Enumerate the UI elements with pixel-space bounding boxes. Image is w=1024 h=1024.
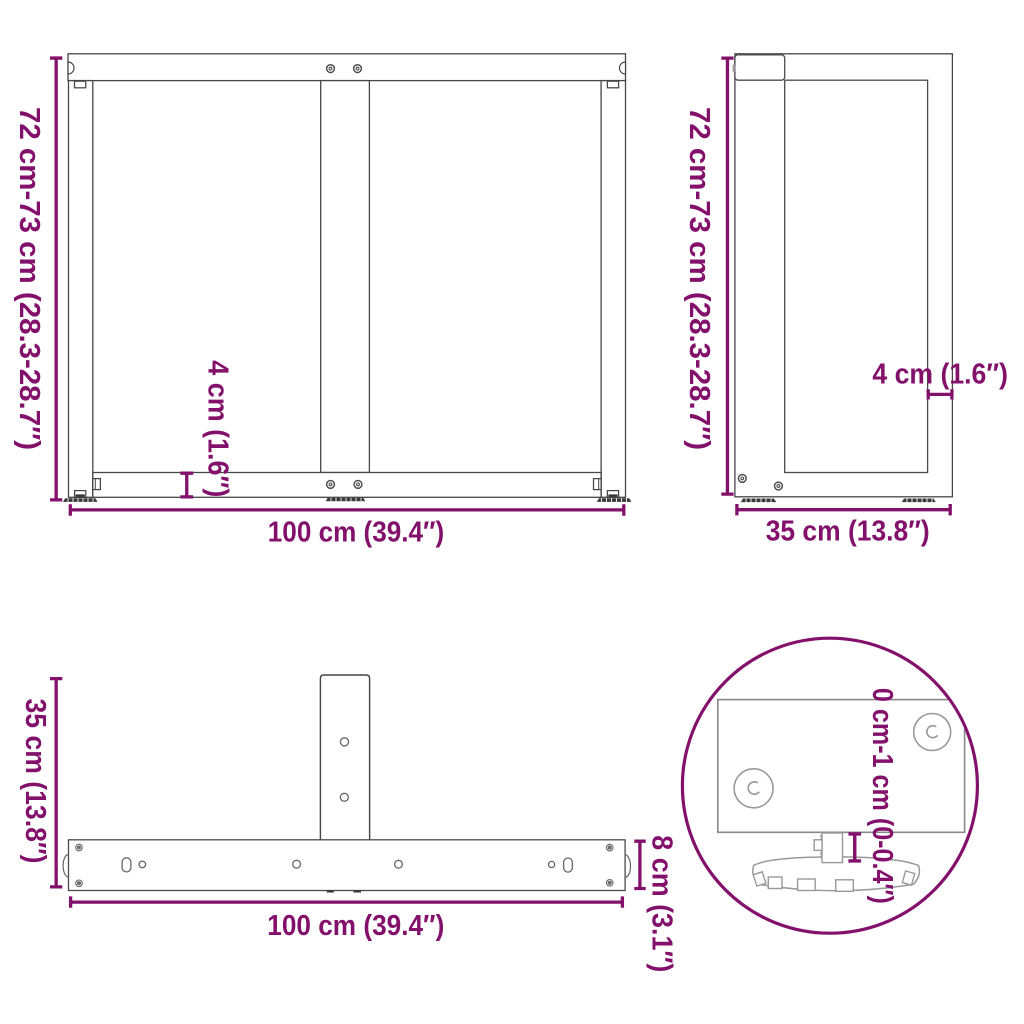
- svg-text:72 cm-73 cm (28.3-28.7″): 72 cm-73 cm (28.3-28.7″): [683, 107, 715, 450]
- svg-text:100 cm (39.4″): 100 cm (39.4″): [267, 910, 444, 942]
- svg-text:4 cm (1.6″): 4 cm (1.6″): [201, 360, 233, 497]
- svg-text:35 cm (13.8″): 35 cm (13.8″): [766, 516, 930, 548]
- svg-text:4 cm (1.6″): 4 cm (1.6″): [872, 358, 1008, 390]
- svg-text:0 cm-1 cm (0-0.4″): 0 cm-1 cm (0-0.4″): [866, 688, 898, 904]
- svg-text:8 cm (3.1″): 8 cm (3.1″): [646, 835, 678, 972]
- svg-text:35 cm (13.8″): 35 cm (13.8″): [19, 699, 51, 864]
- svg-text:100 cm (39.4″): 100 cm (39.4″): [268, 516, 444, 548]
- svg-text:72 cm-73 cm (28.3-28.7″): 72 cm-73 cm (28.3-28.7″): [13, 107, 45, 450]
